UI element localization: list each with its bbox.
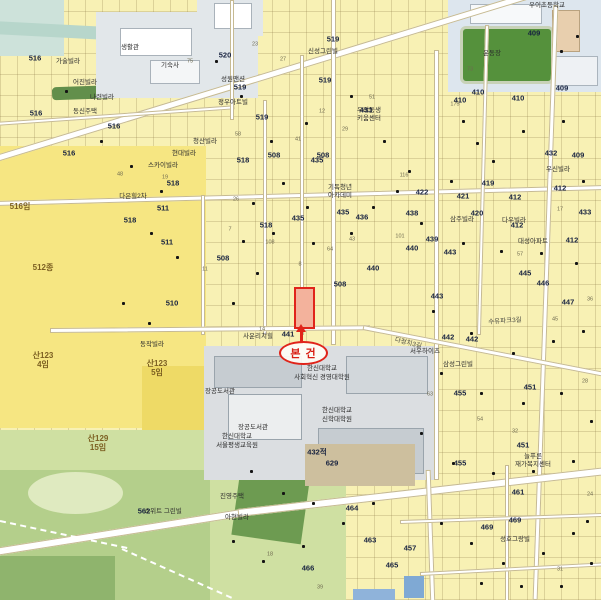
place-name: 우신빌라 bbox=[546, 167, 570, 174]
building-marker-icon bbox=[520, 585, 523, 588]
place-name: 어진빌라 bbox=[73, 80, 97, 87]
parcel-number: 518 bbox=[124, 216, 137, 224]
dormitory-building bbox=[120, 28, 192, 56]
area-label: 산123 bbox=[33, 352, 54, 360]
lot-number: 14 bbox=[259, 327, 265, 333]
building-marker-icon bbox=[542, 552, 545, 555]
building-marker-icon bbox=[560, 585, 563, 588]
place-name: 우이초등학교 bbox=[529, 3, 565, 10]
parcel-number: 433 bbox=[579, 208, 592, 216]
parcel-number: 520 bbox=[219, 51, 232, 59]
building-marker-icon bbox=[396, 190, 399, 193]
lot-number: 19 bbox=[162, 175, 168, 181]
place-name: 사회혁신 경영대학원 bbox=[294, 375, 350, 382]
building-marker-icon bbox=[480, 582, 483, 585]
parcel-number: 419 bbox=[482, 179, 495, 187]
building-marker-icon bbox=[552, 340, 555, 343]
building-marker-icon bbox=[476, 142, 479, 145]
place-name: 진영주택 bbox=[220, 494, 244, 501]
place-name: 스카이빌라 bbox=[148, 163, 178, 170]
place-name: 기숙사 bbox=[161, 63, 179, 70]
road bbox=[434, 50, 439, 480]
school-building bbox=[552, 56, 598, 86]
lot-number: 58 bbox=[235, 132, 241, 138]
building-marker-icon bbox=[440, 372, 443, 375]
place-name: 한신대학교 bbox=[222, 434, 252, 441]
parcel-number: 410 bbox=[472, 88, 485, 96]
place-name: 삼주빌라 bbox=[450, 217, 474, 224]
subject-parcel-highlight bbox=[294, 287, 315, 329]
lot-number: 28 bbox=[582, 379, 588, 385]
parcel-number: 519 bbox=[256, 113, 269, 121]
parcel-number: 511 bbox=[161, 238, 173, 246]
parcel-number: 443 bbox=[444, 248, 457, 256]
road bbox=[533, 5, 559, 600]
parcel-number: 443 bbox=[431, 292, 444, 300]
parcel-number: 442 bbox=[466, 335, 479, 343]
place-name: 동작빌라 bbox=[140, 342, 164, 349]
lot-number: 8 bbox=[298, 262, 301, 268]
building-marker-icon bbox=[450, 180, 453, 183]
parcel-number: 457 bbox=[404, 544, 417, 552]
lot-number: 116 bbox=[400, 173, 409, 179]
park-forest-dark bbox=[0, 556, 115, 600]
parcel-number: 435 bbox=[337, 208, 350, 216]
lot-number: 32 bbox=[512, 429, 518, 435]
parcel-number: 410 bbox=[512, 94, 525, 102]
parcel-number: 422 bbox=[416, 188, 429, 196]
parcel-number: 412 bbox=[554, 184, 567, 192]
road bbox=[201, 195, 205, 335]
place-name: 가술빌라 bbox=[56, 59, 80, 66]
building-marker-icon bbox=[242, 240, 245, 243]
place-name: 늘푸른 bbox=[524, 454, 542, 461]
parcel-number: 510 bbox=[166, 299, 179, 307]
parcel-number: 412 bbox=[566, 236, 579, 244]
building-marker-icon bbox=[372, 206, 375, 209]
parcel-number: 451 bbox=[524, 383, 537, 391]
place-name: 정우아트빌 bbox=[218, 100, 248, 107]
lot-number: 175 bbox=[450, 102, 459, 108]
parcel-number: 469 bbox=[509, 516, 522, 524]
parcel-number: 435 bbox=[311, 156, 324, 164]
road bbox=[263, 100, 267, 335]
area-label: 5임 bbox=[151, 369, 163, 377]
parcel-number: 464 bbox=[346, 504, 359, 512]
lot-number: 48 bbox=[117, 172, 123, 178]
parcel-number: 508 bbox=[217, 254, 230, 262]
building-marker-icon bbox=[160, 190, 163, 193]
lot-number: 101 bbox=[395, 234, 404, 240]
lot-number: 26 bbox=[233, 197, 239, 203]
lot-number: 45 bbox=[552, 317, 558, 323]
pond bbox=[353, 589, 395, 600]
building-marker-icon bbox=[572, 460, 575, 463]
building-marker-icon bbox=[420, 222, 423, 225]
parcel-number: 518 bbox=[167, 179, 180, 187]
place-name: 신성그린빌 bbox=[308, 49, 338, 56]
parcel-number: 516 bbox=[29, 54, 42, 62]
building-marker-icon bbox=[522, 402, 525, 405]
parcel-number: 519 bbox=[327, 35, 340, 43]
parcel-number: 441 bbox=[282, 330, 295, 338]
building-marker-icon bbox=[462, 242, 465, 245]
place-name: 한신대학교 bbox=[307, 366, 337, 373]
building-marker-icon bbox=[306, 206, 309, 209]
building-marker-icon bbox=[572, 532, 575, 535]
campus-building bbox=[346, 356, 428, 394]
parcel-number: 442 bbox=[442, 333, 455, 341]
building-marker-icon bbox=[383, 140, 386, 143]
building-marker-icon bbox=[342, 522, 345, 525]
building-marker-icon bbox=[420, 432, 423, 435]
lawn-oval bbox=[28, 472, 123, 514]
building-marker-icon bbox=[492, 472, 495, 475]
parcel-number: 412 bbox=[509, 193, 522, 201]
parcel-number: 432적 bbox=[307, 448, 326, 456]
place-name: 서우하이츠 bbox=[410, 349, 440, 356]
parcel-number: 432 bbox=[545, 149, 558, 157]
parcel-number: 516 bbox=[63, 149, 76, 157]
place-name: 동신주택 bbox=[73, 109, 97, 116]
building-marker-icon bbox=[462, 120, 465, 123]
place-name: 성원맨션 bbox=[221, 77, 245, 84]
place-name: 현대빌라 bbox=[172, 151, 196, 158]
building-marker-icon bbox=[282, 492, 285, 495]
building-marker-icon bbox=[250, 470, 253, 473]
building-marker-icon bbox=[590, 562, 593, 565]
parcel-number: 508 bbox=[334, 280, 347, 288]
place-name: 아현빌라 bbox=[225, 515, 249, 522]
place-name: 나련빌라 bbox=[90, 95, 114, 102]
lot-number: 43 bbox=[349, 237, 355, 243]
lot-number: 23 bbox=[252, 42, 258, 48]
parcel-number: 466 bbox=[302, 564, 315, 572]
place-name: 한신대학교 bbox=[322, 408, 352, 415]
building-marker-icon bbox=[130, 165, 133, 168]
parcel-number: 445 bbox=[519, 269, 532, 277]
parcel-number: 455 bbox=[454, 459, 467, 467]
place-name: 사운리치힐 bbox=[243, 334, 273, 341]
place-name: 스위트 그린빌 bbox=[144, 509, 182, 516]
parcel-number: 469 bbox=[481, 523, 494, 531]
building-marker-icon bbox=[470, 332, 473, 335]
lot-number: 63 bbox=[427, 392, 433, 398]
lot-number: 41 bbox=[295, 137, 301, 143]
lot-number: 18 bbox=[267, 552, 273, 558]
building-marker-icon bbox=[240, 95, 243, 98]
building-marker-icon bbox=[65, 90, 68, 93]
lot-number: 29 bbox=[342, 127, 348, 133]
parcel-number: 409 bbox=[528, 29, 541, 37]
lot-number: 57 bbox=[517, 252, 523, 258]
parcel-number: 438 bbox=[406, 209, 419, 217]
area-label: 516임 bbox=[10, 203, 31, 211]
parcel-number: 461 bbox=[512, 488, 525, 496]
parcel-number: 446 bbox=[537, 279, 550, 287]
parcel-number: 516 bbox=[30, 109, 43, 117]
parcel-number: 465 bbox=[386, 561, 399, 569]
building-marker-icon bbox=[312, 502, 315, 505]
parcel-number: 518 bbox=[237, 156, 250, 164]
parcel-number: 439 bbox=[426, 235, 439, 243]
subject-arrow-head-icon bbox=[296, 324, 306, 332]
building-marker-icon bbox=[282, 182, 285, 185]
building-marker-icon bbox=[480, 392, 483, 395]
area-label: 산129 bbox=[88, 435, 109, 443]
lot-number: 108 bbox=[265, 240, 274, 246]
parcel-number: 436 bbox=[356, 213, 369, 221]
building-marker-icon bbox=[562, 120, 565, 123]
building-marker-icon bbox=[502, 562, 505, 565]
place-name: 생활관 bbox=[121, 45, 139, 52]
lot-number: 75 bbox=[187, 59, 193, 65]
building-marker-icon bbox=[215, 60, 218, 63]
place-name: 다은힐2차 bbox=[119, 194, 147, 201]
building-marker-icon bbox=[470, 542, 473, 545]
place-name: 서울평생교육원 bbox=[216, 443, 258, 450]
place-name: 신학대학원 bbox=[322, 417, 352, 424]
place-name: 다우빌라 bbox=[502, 218, 526, 225]
parcel-number: 518 bbox=[260, 221, 273, 229]
building-marker-icon bbox=[560, 392, 563, 395]
place-name: 키움센터 bbox=[357, 116, 381, 123]
building-marker-icon bbox=[372, 502, 375, 505]
pond bbox=[404, 576, 424, 598]
place-name: 재가복지센터 bbox=[515, 462, 551, 469]
parcel-number: 440 bbox=[367, 264, 380, 272]
place-name: 성호그랑빌 bbox=[500, 537, 530, 544]
area-label: 4임 bbox=[37, 361, 49, 369]
parcel-number: 455 bbox=[454, 389, 467, 397]
building-marker-icon bbox=[575, 262, 578, 265]
parcel-number: 519 bbox=[319, 76, 332, 84]
building-marker-icon bbox=[262, 560, 265, 563]
building-marker-icon bbox=[492, 160, 495, 163]
parcel-number: 519 bbox=[234, 83, 247, 91]
lot-number: 54 bbox=[477, 417, 483, 423]
parcel-number: 440 bbox=[406, 244, 419, 252]
building-marker-icon bbox=[272, 232, 275, 235]
building-marker-icon bbox=[232, 302, 235, 305]
lot-number: 31 bbox=[557, 567, 563, 573]
road bbox=[505, 465, 509, 600]
building-marker-icon bbox=[540, 252, 543, 255]
subject-label: 본 건 bbox=[290, 345, 316, 361]
area-label: 산123 bbox=[147, 360, 168, 368]
parcel-number: 409 bbox=[572, 151, 585, 159]
building-marker-icon bbox=[440, 522, 443, 525]
lot-number: 24 bbox=[587, 492, 593, 498]
place-name: 우리동생 bbox=[357, 108, 381, 115]
lot-number: 7 bbox=[228, 227, 231, 233]
building-marker-icon bbox=[560, 50, 563, 53]
building-marker-icon bbox=[312, 242, 315, 245]
building-marker-icon bbox=[252, 202, 255, 205]
lot-number: 64 bbox=[327, 247, 333, 253]
building-marker-icon bbox=[150, 232, 153, 235]
building-marker-icon bbox=[432, 310, 435, 313]
parcel-number: 435 bbox=[292, 214, 305, 222]
road bbox=[420, 562, 601, 576]
lot-number: 27 bbox=[280, 57, 286, 63]
building-marker-icon bbox=[522, 130, 525, 133]
building-marker-icon bbox=[302, 545, 305, 548]
building-marker-icon bbox=[452, 462, 455, 465]
building-marker-icon bbox=[590, 420, 593, 423]
building-marker-icon bbox=[582, 330, 585, 333]
parcel-number: 409 bbox=[556, 84, 569, 92]
area-label: 512종 bbox=[33, 264, 54, 272]
building-marker-icon bbox=[256, 272, 259, 275]
building-marker-icon bbox=[176, 256, 179, 259]
building-marker-icon bbox=[350, 232, 353, 235]
building-marker-icon bbox=[100, 140, 103, 143]
building-marker-icon bbox=[270, 140, 273, 143]
place-name: 대성아파트 bbox=[518, 239, 548, 246]
lot-number: 36 bbox=[587, 297, 593, 303]
parcel-number: 508 bbox=[268, 151, 281, 159]
parcel-number: 463 bbox=[364, 536, 377, 544]
parcel-number: 421 bbox=[457, 192, 470, 200]
building-marker-icon bbox=[586, 520, 589, 523]
place-name: 아카데미 bbox=[328, 193, 352, 200]
building-marker-icon bbox=[350, 95, 353, 98]
place-name: 삼성그린빌 bbox=[443, 362, 473, 369]
lot-number: 11 bbox=[202, 267, 208, 273]
building-marker-icon bbox=[582, 180, 585, 183]
place-name: 기독청년 bbox=[328, 185, 352, 192]
subject-label-bubble: 본 건 bbox=[279, 341, 328, 365]
map-canvas[interactable]: 5205165165165165195195195195185185185185… bbox=[0, 0, 601, 600]
area-label: 15임 bbox=[90, 444, 106, 452]
building-marker-icon bbox=[512, 352, 515, 355]
lot-number: 73 bbox=[467, 67, 473, 73]
building-marker-icon bbox=[576, 35, 579, 38]
parcel-number: 511 bbox=[157, 204, 169, 212]
building-marker-icon bbox=[305, 122, 308, 125]
building-marker-icon bbox=[500, 250, 503, 253]
parcel-number: 629 bbox=[326, 459, 339, 467]
building-marker-icon bbox=[532, 470, 535, 473]
parcel-number: 516 bbox=[108, 122, 121, 130]
building-marker-icon bbox=[232, 540, 235, 543]
lot-number: 39 bbox=[317, 585, 323, 591]
place-name: 운동장 bbox=[483, 51, 501, 58]
place-name: 청산빌라 bbox=[193, 139, 217, 146]
place-name: 장공도서관 bbox=[205, 389, 235, 396]
parcel-number: 447 bbox=[562, 298, 575, 306]
lot-number: 17 bbox=[557, 207, 563, 213]
road-name: 수유파크3길 bbox=[488, 318, 522, 327]
building-marker-icon bbox=[408, 170, 411, 173]
lot-number: 12 bbox=[319, 109, 325, 115]
lot-number: 51 bbox=[369, 95, 375, 101]
place-name: 장공도서관 bbox=[238, 425, 268, 432]
building-marker-icon bbox=[148, 322, 151, 325]
parcel-number: 451 bbox=[517, 441, 530, 449]
building-marker-icon bbox=[122, 302, 125, 305]
